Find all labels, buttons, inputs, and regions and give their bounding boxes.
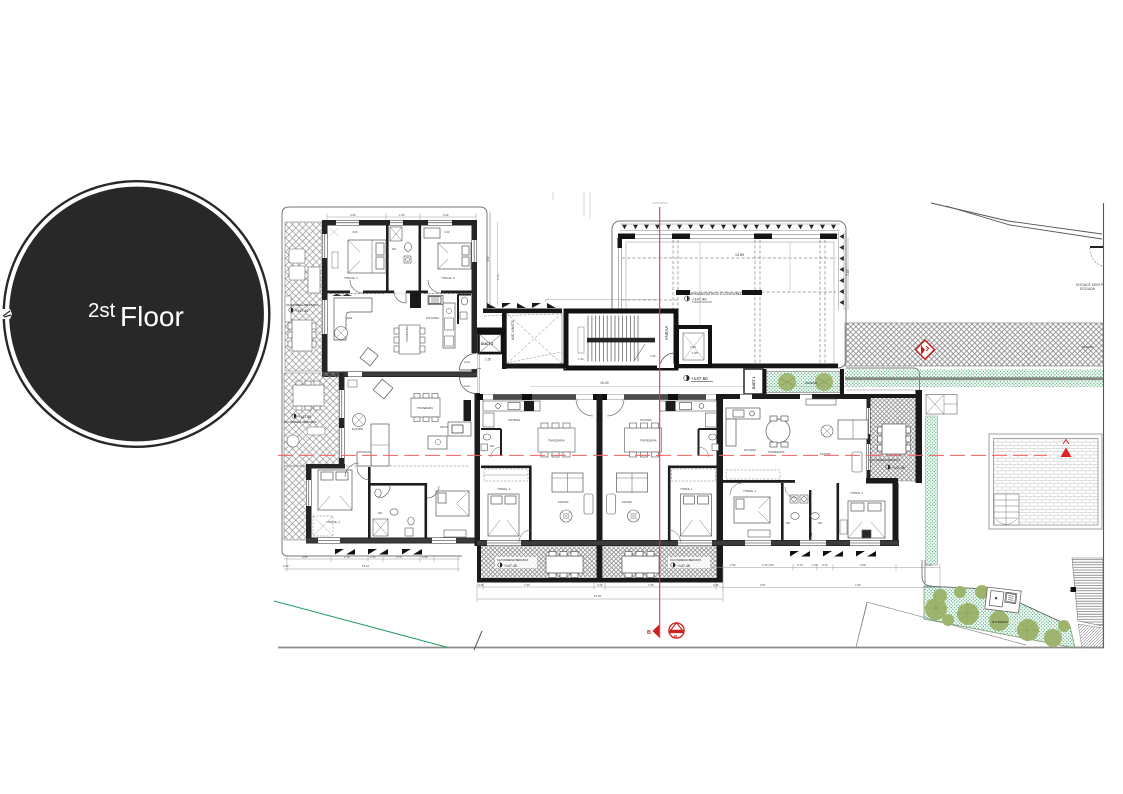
svg-text:+147.45: +147.45 xyxy=(504,564,517,568)
svg-text:Δ.Θ2: Δ.Θ2 xyxy=(464,384,470,388)
svg-text:+147.45: +147.45 xyxy=(298,415,311,419)
svg-text:DUCT 2: DUCT 2 xyxy=(481,342,493,346)
svg-text:ΥΠΝΟΔ. 2: ΥΠΝΟΔ. 2 xyxy=(441,276,455,280)
svg-text:15.10: 15.10 xyxy=(362,564,369,568)
svg-text:WC: WC xyxy=(378,511,382,515)
svg-text:ΥΠΝΟΔ. 1: ΥΠΝΟΔ. 1 xyxy=(850,491,863,495)
svg-text:0.25: 0.25 xyxy=(597,583,603,587)
svg-text:0.25: 0.25 xyxy=(713,583,719,587)
svg-text:+147.40: +147.40 xyxy=(692,297,707,302)
svg-text:ΚΑΛΥΜΜΕΝΗ ΒΕΡΑΝΤΑ: ΚΑΛΥΜΜΕΝΗ ΒΕΡΑΝΤΑ xyxy=(869,458,900,462)
svg-text:ΚΟΥΖΙΝΑ: ΚΟΥΖΙΝΑ xyxy=(640,418,652,422)
svg-text:ΤΡΑΠΕΖΑΡΙΑ: ΤΡΑΠΕΖΑΡΙΑ xyxy=(768,450,785,454)
svg-text:0.70: 0.70 xyxy=(797,563,803,567)
svg-text:ΣΑΛΟΝΙ: ΣΑΛΟΝΙ xyxy=(558,500,569,504)
svg-text:Δ.Θ1: Δ.Θ1 xyxy=(464,360,470,364)
svg-text:WC: WC xyxy=(818,522,822,525)
svg-text:3.40: 3.40 xyxy=(443,213,449,217)
svg-text:ΚΑΛΥΜΜΕΝΗ ΒΕΡΑΝΤΑ: ΚΑΛΥΜΜΕΝΗ ΒΕΡΑΝΤΑ xyxy=(497,558,528,562)
svg-text:+147.45: +147.45 xyxy=(677,564,690,568)
svg-text:0.70: 0.70 xyxy=(822,563,828,567)
svg-text:ΜΗΧΑΝΟΛΟΓΙΚΟΣ ΕΞΟΠΛΙΣΜΟΣ: ΜΗΧΑΝΟΛΟΓΙΚΟΣ ΕΞΟΠΛΙΣΜΟΣ xyxy=(689,292,744,296)
svg-text:0.12 1.00: 0.12 1.00 xyxy=(762,563,774,567)
svg-text:+147.45: +147.45 xyxy=(295,309,308,313)
svg-text:16.49: 16.49 xyxy=(600,381,609,385)
svg-text:Floor: Floor xyxy=(120,301,184,332)
svg-text:3.70: 3.70 xyxy=(396,555,402,559)
svg-text:ΚΑΛΥΜΜΕΝΗ ΒΕΡΑΝΤΑ: ΚΑΛΥΜΜΕΝΗ ΒΕΡΑΝΤΑ xyxy=(670,558,701,562)
svg-text:ΚΟΥΖΙΝΑ: ΚΟΥΖΙΝΑ xyxy=(744,448,756,452)
svg-text:7.26: 7.26 xyxy=(855,583,861,587)
svg-text:ΤΡΑΠΕΖΑΡΙΑ: ΤΡΑΠΕΖΑΡΙΑ xyxy=(417,406,433,410)
svg-text:DUCT 1: DUCT 1 xyxy=(752,377,756,389)
svg-text:4.85: 4.85 xyxy=(302,555,308,559)
svg-text:ΤΡΑΠΕΖΑΡΙΑ: ΤΡΑΠΕΖΑΡΙΑ xyxy=(640,439,657,443)
svg-text:ΦΥΤΕΜΕΝΟ: ΦΥΤΕΜΕΝΟ xyxy=(992,620,1009,624)
svg-text:7.30: 7.30 xyxy=(524,583,530,587)
svg-text:4.43: 4.43 xyxy=(486,256,490,262)
svg-text:3.60: 3.60 xyxy=(352,230,358,234)
svg-text:ΤΡΑΠΕΖΑΡΙΑ: ΤΡΑΠΕΖΑΡΙΑ xyxy=(405,326,409,342)
svg-text:0.25: 0.25 xyxy=(478,583,484,587)
svg-text:1.50: 1.50 xyxy=(283,564,289,568)
svg-text:+147.45: +147.45 xyxy=(892,466,905,470)
svg-text:WC: WC xyxy=(392,247,396,251)
svg-text:WC: WC xyxy=(786,522,790,525)
svg-text:7.87: 7.87 xyxy=(846,269,850,276)
svg-text:ΚΑΛΥΜΜΕΝΗ ΒΕΡΑΝΤΑ: ΚΑΛΥΜΜΕΝΗ ΒΕΡΑΝΤΑ xyxy=(286,303,318,307)
svg-text:1.50: 1.50 xyxy=(485,358,491,362)
svg-text:3.40: 3.40 xyxy=(444,230,450,234)
svg-text:1.50: 1.50 xyxy=(370,555,376,559)
svg-text:ΚΟΥΖΙΝΑ: ΚΟΥΖΙΝΑ xyxy=(426,316,439,320)
svg-text:15.35: 15.35 xyxy=(594,594,601,598)
svg-text:1.40: 1.40 xyxy=(578,357,584,361)
svg-text:ΣΑΛΟΝΙ: ΣΑΛΟΝΙ xyxy=(352,427,363,431)
svg-text:6.50: 6.50 xyxy=(496,274,500,280)
svg-text:1.65: 1.65 xyxy=(399,213,405,217)
svg-text:7.29: 7.29 xyxy=(648,583,654,587)
svg-text:3.99: 3.99 xyxy=(860,563,866,567)
svg-text:ΣΑΛΟΝΙ: ΣΑΛΟΝΙ xyxy=(622,500,632,504)
svg-text:ΥΠΝΟΔ. 1: ΥΠΝΟΔ. 1 xyxy=(344,276,358,280)
svg-text:2.40: 2.40 xyxy=(650,354,656,358)
svg-text:B: B xyxy=(647,630,651,636)
svg-text:2st: 2st xyxy=(88,299,116,322)
svg-text:ΥΠΝΟΔ. 1: ΥΠΝΟΔ. 1 xyxy=(497,487,510,491)
svg-text:ΠΡΑΣΙΝΟ: ΠΡΑΣΙΝΟ xyxy=(805,381,818,385)
svg-text:1.60: 1.60 xyxy=(690,345,696,349)
svg-text:ΥΠΝΟΔ. 1: ΥΠΝΟΔ. 1 xyxy=(680,487,693,491)
svg-text:1.05: 1.05 xyxy=(692,351,698,355)
svg-text:13.89: 13.89 xyxy=(735,253,744,257)
svg-text:A/C UNITS: A/C UNITS xyxy=(510,320,515,340)
svg-text:ΑΝΕΛΑ: ΑΝΕΛΑ xyxy=(664,326,669,340)
svg-text:2.50: 2.50 xyxy=(730,563,736,567)
svg-text:3.57: 3.57 xyxy=(760,583,766,587)
svg-text:ΥΠΝΟΔ. 2: ΥΠΝΟΔ. 2 xyxy=(743,489,756,493)
svg-text:3.60: 3.60 xyxy=(350,213,356,217)
svg-text:ΚΑΛΥΜΜΕΝΗ ΒΕΡΑΝΤΑ: ΚΑΛΥΜΜΕΝΗ ΒΕΡΑΝΤΑ xyxy=(284,420,316,424)
svg-text:ΚΟΥΖΙΝΑ: ΚΟΥΖΙΝΑ xyxy=(508,418,520,422)
svg-text:ΤΡΑΠΕΖΑΡΙΑ: ΤΡΑΠΕΖΑΡΙΑ xyxy=(548,439,565,443)
svg-text:ΠΕΖΟΔΡ.: ΠΕΖΟΔΡ. xyxy=(1082,345,1094,349)
svg-text:+147.50: +147.50 xyxy=(691,376,708,381)
svg-text:3.70: 3.70 xyxy=(344,555,350,559)
svg-text:ΕΙΣΟΔΩΝ: ΕΙΣΟΔΩΝ xyxy=(1080,287,1096,291)
svg-text:1.00: 1.00 xyxy=(812,563,818,567)
svg-text:WC: WC xyxy=(490,444,494,448)
svg-text:1.45: 1.45 xyxy=(422,555,428,559)
